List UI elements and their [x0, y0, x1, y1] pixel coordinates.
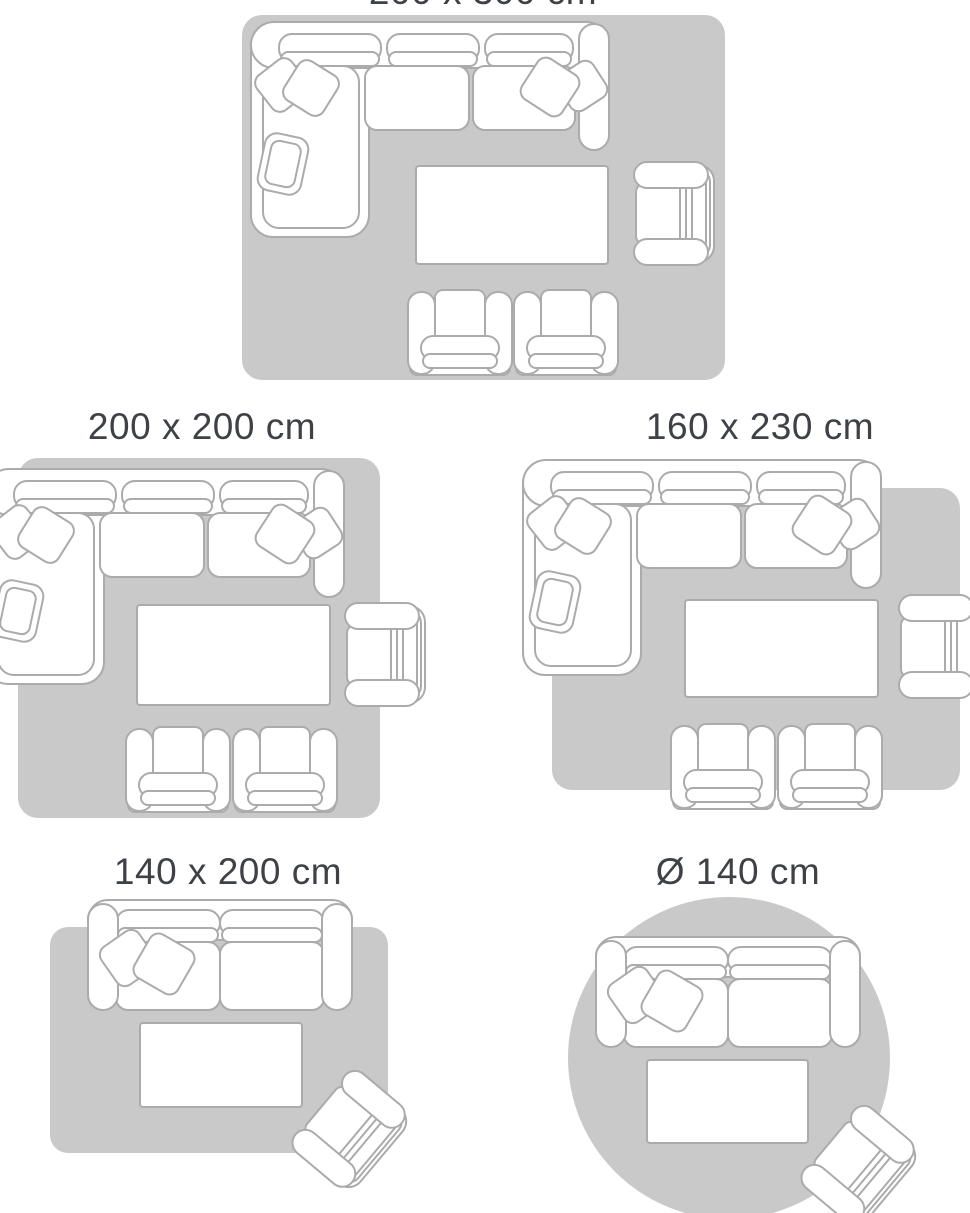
size-title-160x230: 160 x 230 cm	[646, 408, 874, 445]
scene-d140	[568, 897, 924, 1213]
scene-200x300	[242, 15, 725, 380]
club-chair-illustration	[408, 290, 512, 375]
size-title-140x200: 140 x 200 cm	[114, 853, 342, 890]
rug-size-guide: 200 x 300 cm 200 x 200 cm 160 x 230 cm 1…	[0, 0, 970, 1213]
club-chair-illustration	[126, 727, 230, 812]
armchair-illustration	[634, 162, 714, 265]
coffee-table-illustration	[647, 1060, 808, 1143]
club-chair-illustration	[778, 724, 882, 809]
club-chair-illustration	[514, 290, 618, 375]
two-seater-sofa-illustration	[596, 937, 860, 1047]
coffee-table-illustration	[685, 600, 878, 697]
coffee-table-illustration	[140, 1023, 302, 1107]
size-title-200x300: 200 x 300 cm	[369, 0, 597, 10]
size-title-200x200: 200 x 200 cm	[88, 408, 316, 445]
coffee-table-illustration	[416, 166, 608, 264]
size-title-d140: Ø 140 cm	[656, 853, 820, 890]
coffee-table-illustration	[137, 605, 330, 705]
club-chair-illustration	[671, 724, 775, 809]
scene-140x200	[50, 900, 415, 1196]
armchair-illustration	[899, 595, 970, 698]
rug-size-guide-illustration	[0, 0, 970, 1213]
armchair-illustration	[345, 603, 425, 706]
scene-160x230	[523, 460, 970, 809]
two-seater-sofa-illustration	[88, 900, 352, 1010]
club-chair-illustration	[233, 727, 337, 812]
scene-200x200	[0, 458, 425, 818]
